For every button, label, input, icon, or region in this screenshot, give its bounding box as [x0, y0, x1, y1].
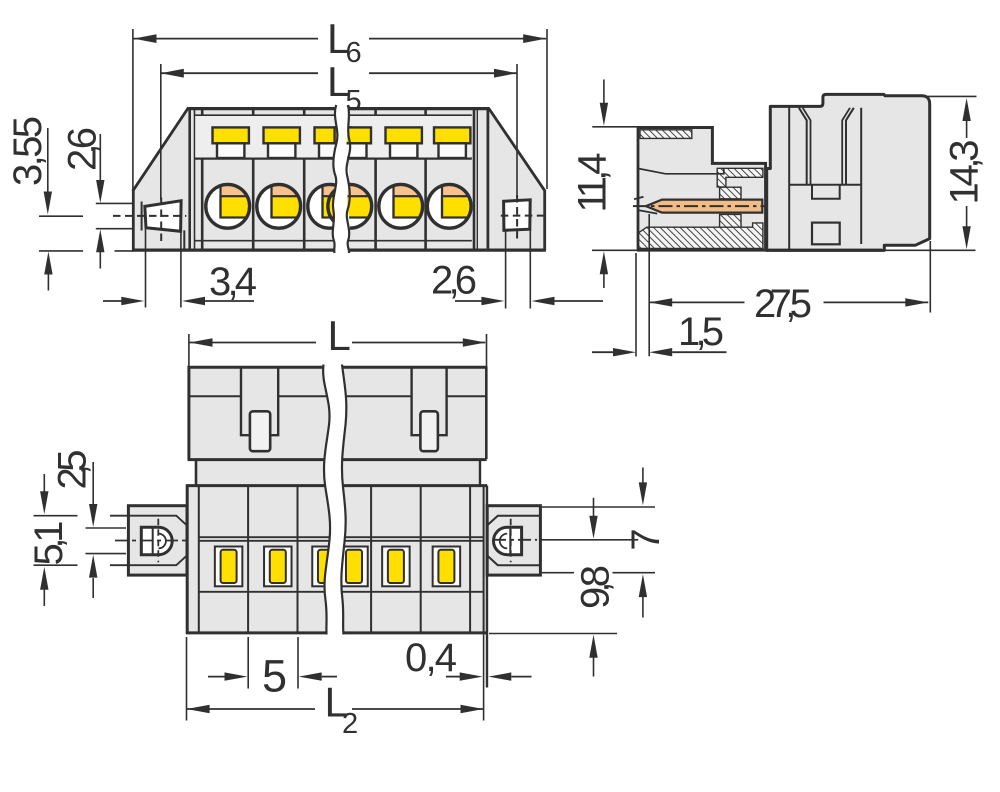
svg-text:2,6: 2,6 — [61, 127, 105, 171]
svg-text:1,5: 1,5 — [678, 310, 724, 354]
svg-text:7: 7 — [624, 528, 668, 550]
svg-text:2,6: 2,6 — [431, 259, 477, 303]
svg-text:11,4: 11,4 — [571, 153, 615, 213]
svg-text:5: 5 — [346, 85, 362, 117]
svg-text:2: 2 — [342, 708, 358, 740]
svg-text:3,55: 3,55 — [6, 116, 50, 186]
svg-text:0,4: 0,4 — [405, 636, 457, 680]
svg-text:5: 5 — [262, 651, 287, 702]
svg-text:3,4: 3,4 — [209, 260, 257, 304]
svg-text:2,5: 2,5 — [51, 450, 95, 490]
svg-text:9,8: 9,8 — [574, 565, 618, 609]
svg-text:27,5: 27,5 — [754, 282, 812, 326]
svg-text:L: L — [328, 312, 351, 359]
svg-text:5,1: 5,1 — [27, 521, 71, 566]
svg-text:14,3: 14,3 — [943, 140, 987, 205]
